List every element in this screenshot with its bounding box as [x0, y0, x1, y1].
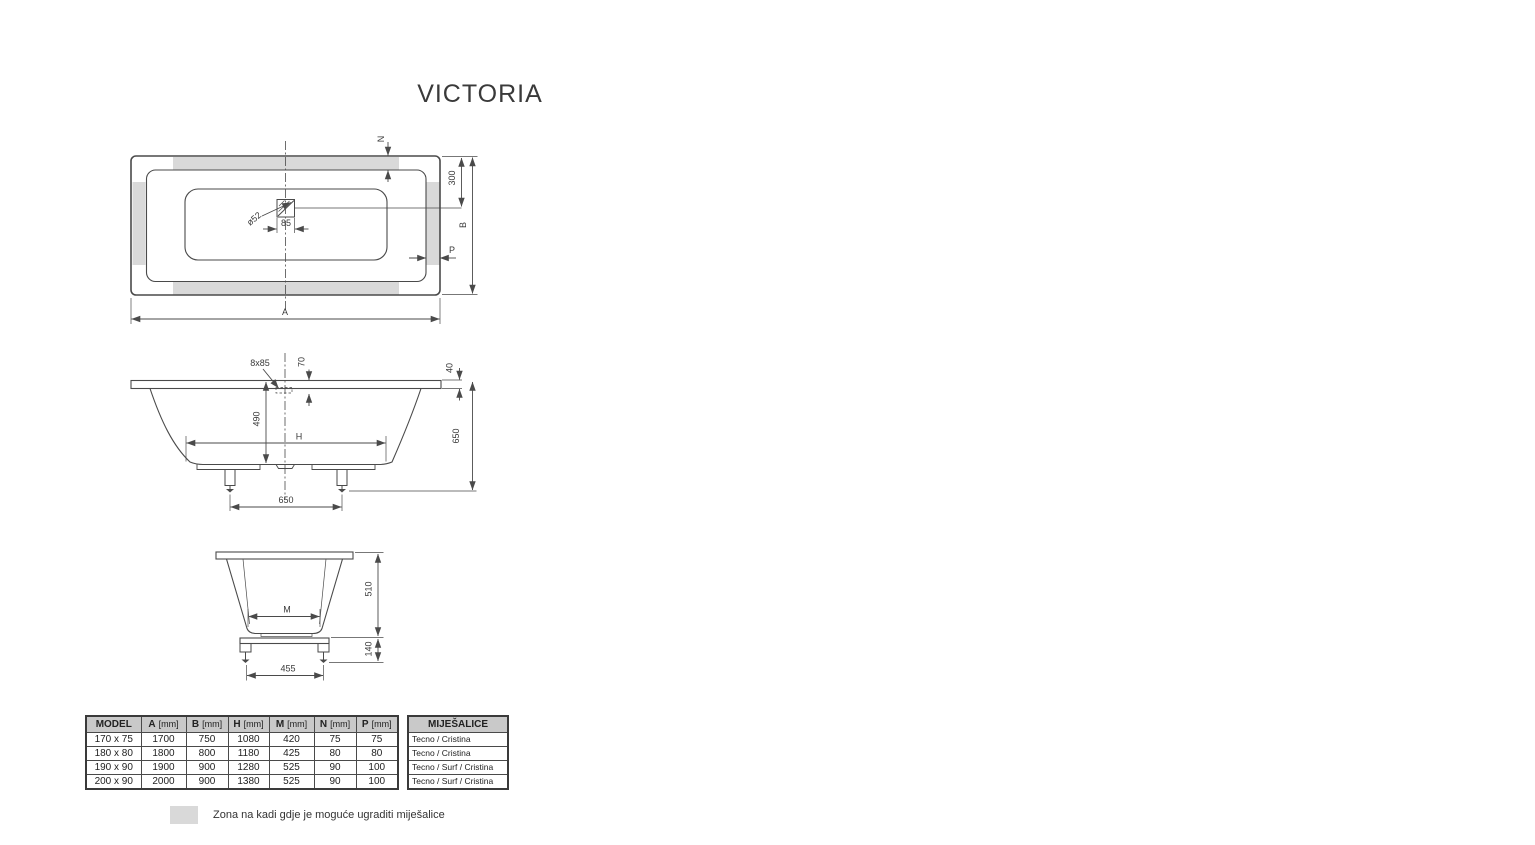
col-header-n: N[mm] — [314, 716, 356, 733]
table-row: Tecno / Surf / Cristina — [408, 775, 508, 790]
dimensions-table: MODEL A[mm] B[mm] H[mm] M[mm] N[mm] P[mm… — [85, 715, 399, 790]
legend: Zona na kadi gdje je moguće ugraditi mij… — [170, 806, 445, 824]
side-view: 8x85 70 490 H 40 — [131, 353, 477, 511]
dim-650-feet: 650 — [230, 495, 342, 512]
hole-diameter-label: ø52 — [245, 210, 263, 228]
cell-p: 100 — [356, 761, 398, 775]
cell-h: 1080 — [228, 733, 269, 747]
col-header-model: MODEL — [86, 716, 141, 733]
cell-m: 425 — [269, 747, 314, 761]
table-header-row: MODEL A[mm] B[mm] H[mm] M[mm] N[mm] P[mm… — [86, 716, 398, 733]
mixers-table: MIJEŠALICE Tecno / Cristina Tecno / Cris… — [407, 715, 509, 790]
rim-section — [216, 552, 353, 559]
table-row: Tecno / Cristina — [408, 733, 508, 747]
table-row: Tecno / Surf / Cristina — [408, 761, 508, 775]
cell-model: 190 x 90 — [86, 761, 141, 775]
cell-b: 900 — [186, 761, 228, 775]
top-view: ø52 85 N 300 — [131, 136, 478, 324]
table-row: 190 x 90 1900 900 1280 525 90 100 — [86, 761, 398, 775]
dim-n-label: N — [376, 136, 386, 143]
cell-a: 1800 — [141, 747, 186, 761]
dim-p-label: P — [449, 245, 455, 255]
cell-n: 90 — [314, 775, 356, 790]
cell-n: 80 — [314, 747, 356, 761]
bathtub-technical-drawing: ø52 85 N 300 — [0, 0, 560, 710]
cell-h: 1380 — [228, 775, 269, 790]
cell-mixers: Tecno / Surf / Cristina — [408, 761, 508, 775]
dim-8x85: 8x85 — [250, 358, 278, 388]
dim-650-feet-label: 650 — [278, 495, 293, 505]
dim-70-label: 70 — [297, 357, 307, 367]
dim-b-label: B — [458, 222, 468, 228]
col-header-p: P[mm] — [356, 716, 398, 733]
cell-m: 525 — [269, 775, 314, 790]
cell-p: 100 — [356, 775, 398, 790]
cell-b: 800 — [186, 747, 228, 761]
table-header-row: MIJEŠALICE — [408, 716, 508, 733]
cell-mixers: Tecno / Surf / Cristina — [408, 775, 508, 790]
dim-490-label: 490 — [252, 411, 262, 426]
cell-b: 900 — [186, 775, 228, 790]
dim-a-label: A — [282, 307, 288, 317]
dim-85-label: 85 — [281, 218, 291, 228]
cell-p: 80 — [356, 747, 398, 761]
right-foot — [318, 644, 329, 664]
cell-model: 180 x 80 — [86, 747, 141, 761]
cell-p: 75 — [356, 733, 398, 747]
col-header-mixers: MIJEŠALICE — [408, 716, 508, 733]
dim-490: 490 — [252, 382, 267, 463]
zone-color-swatch — [170, 806, 198, 824]
dim-510: 510 — [331, 553, 384, 638]
cell-a: 2000 — [141, 775, 186, 790]
dim-300-label: 300 — [447, 170, 457, 185]
dim-85: 85 — [263, 218, 309, 233]
cell-m: 420 — [269, 733, 314, 747]
dim-140: 140 — [329, 639, 384, 663]
tub-profile — [150, 389, 421, 465]
datasheet-page: VICTORIA — [0, 0, 1535, 845]
table-row: Tecno / Cristina — [408, 747, 508, 761]
cell-h: 1280 — [228, 761, 269, 775]
right-foot — [337, 470, 347, 493]
col-header-h: H[mm] — [228, 716, 269, 733]
cell-n: 90 — [314, 761, 356, 775]
dim-8x85-label: 8x85 — [250, 358, 270, 368]
cell-a: 1700 — [141, 733, 186, 747]
table-row: 180 x 80 1800 800 1180 425 80 80 — [86, 747, 398, 761]
dim-455-label: 455 — [280, 664, 295, 674]
col-header-a: A[mm] — [141, 716, 186, 733]
table-row: 170 x 75 1700 750 1080 420 75 75 — [86, 733, 398, 747]
dim-650-height: 650 — [349, 382, 477, 491]
left-foot — [240, 644, 251, 664]
dim-140-label: 140 — [364, 641, 374, 656]
dim-70: 70 — [297, 357, 310, 406]
dim-h-label: H — [296, 432, 303, 442]
end-view: M 510 140 455 — [216, 552, 384, 681]
legend-text: Zona na kadi gdje je moguće ugraditi mij… — [213, 809, 445, 821]
table-row: 200 x 90 2000 900 1380 525 90 100 — [86, 775, 398, 790]
cell-m: 525 — [269, 761, 314, 775]
dim-40-label: 40 — [445, 363, 455, 373]
col-header-m: M[mm] — [269, 716, 314, 733]
dim-h: H — [186, 432, 386, 462]
cell-n: 75 — [314, 733, 356, 747]
cell-mixers: Tecno / Cristina — [408, 733, 508, 747]
dim-40: 40 — [442, 363, 462, 401]
dim-m: M — [248, 605, 320, 628]
col-header-b: B[mm] — [186, 716, 228, 733]
cell-a: 1900 — [141, 761, 186, 775]
cell-b: 750 — [186, 733, 228, 747]
dim-455: 455 — [247, 664, 324, 681]
cell-h: 1180 — [228, 747, 269, 761]
dim-m-label: M — [283, 605, 291, 615]
dim-650-height-label: 650 — [451, 428, 461, 443]
left-foot — [225, 470, 235, 493]
support-frame — [240, 638, 329, 644]
cell-model: 170 x 75 — [86, 733, 141, 747]
cell-model: 200 x 90 — [86, 775, 141, 790]
cell-mixers: Tecno / Cristina — [408, 747, 508, 761]
dim-510-label: 510 — [364, 581, 374, 596]
